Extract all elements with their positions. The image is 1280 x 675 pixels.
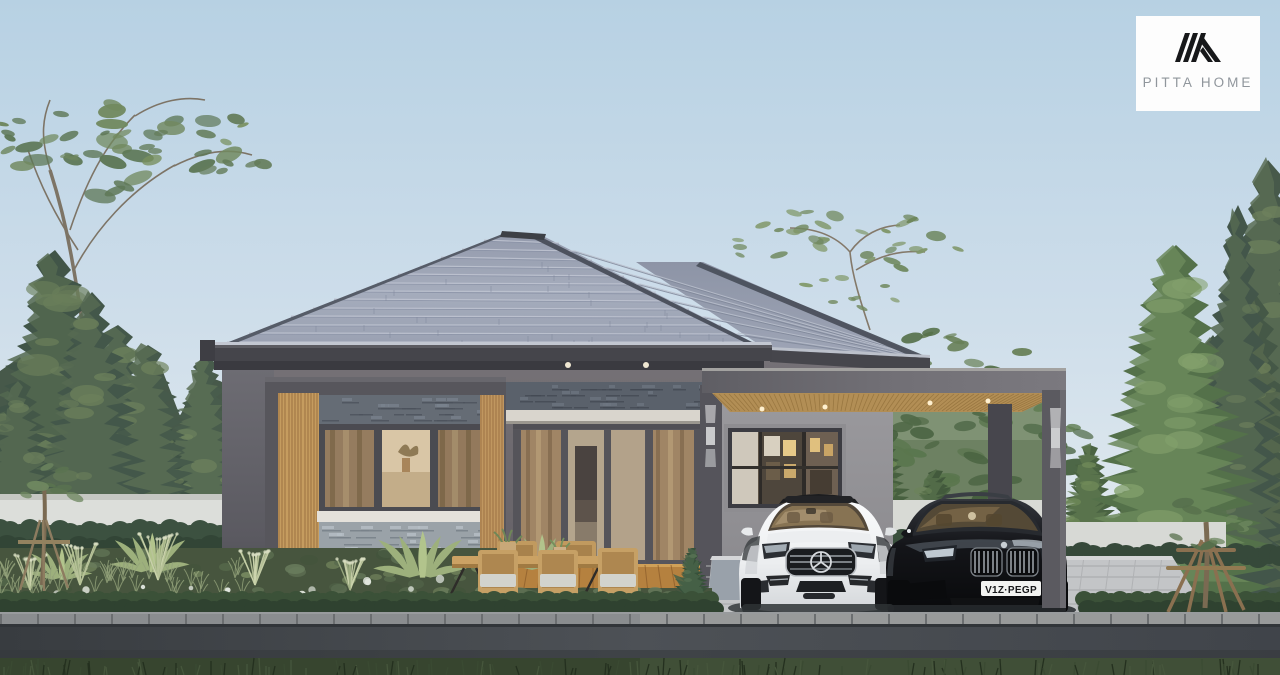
svg-text:PITTA HOME: PITTA HOME <box>1143 75 1254 90</box>
svg-text:V1Z·PEGP: V1Z·PEGP <box>985 585 1037 596</box>
